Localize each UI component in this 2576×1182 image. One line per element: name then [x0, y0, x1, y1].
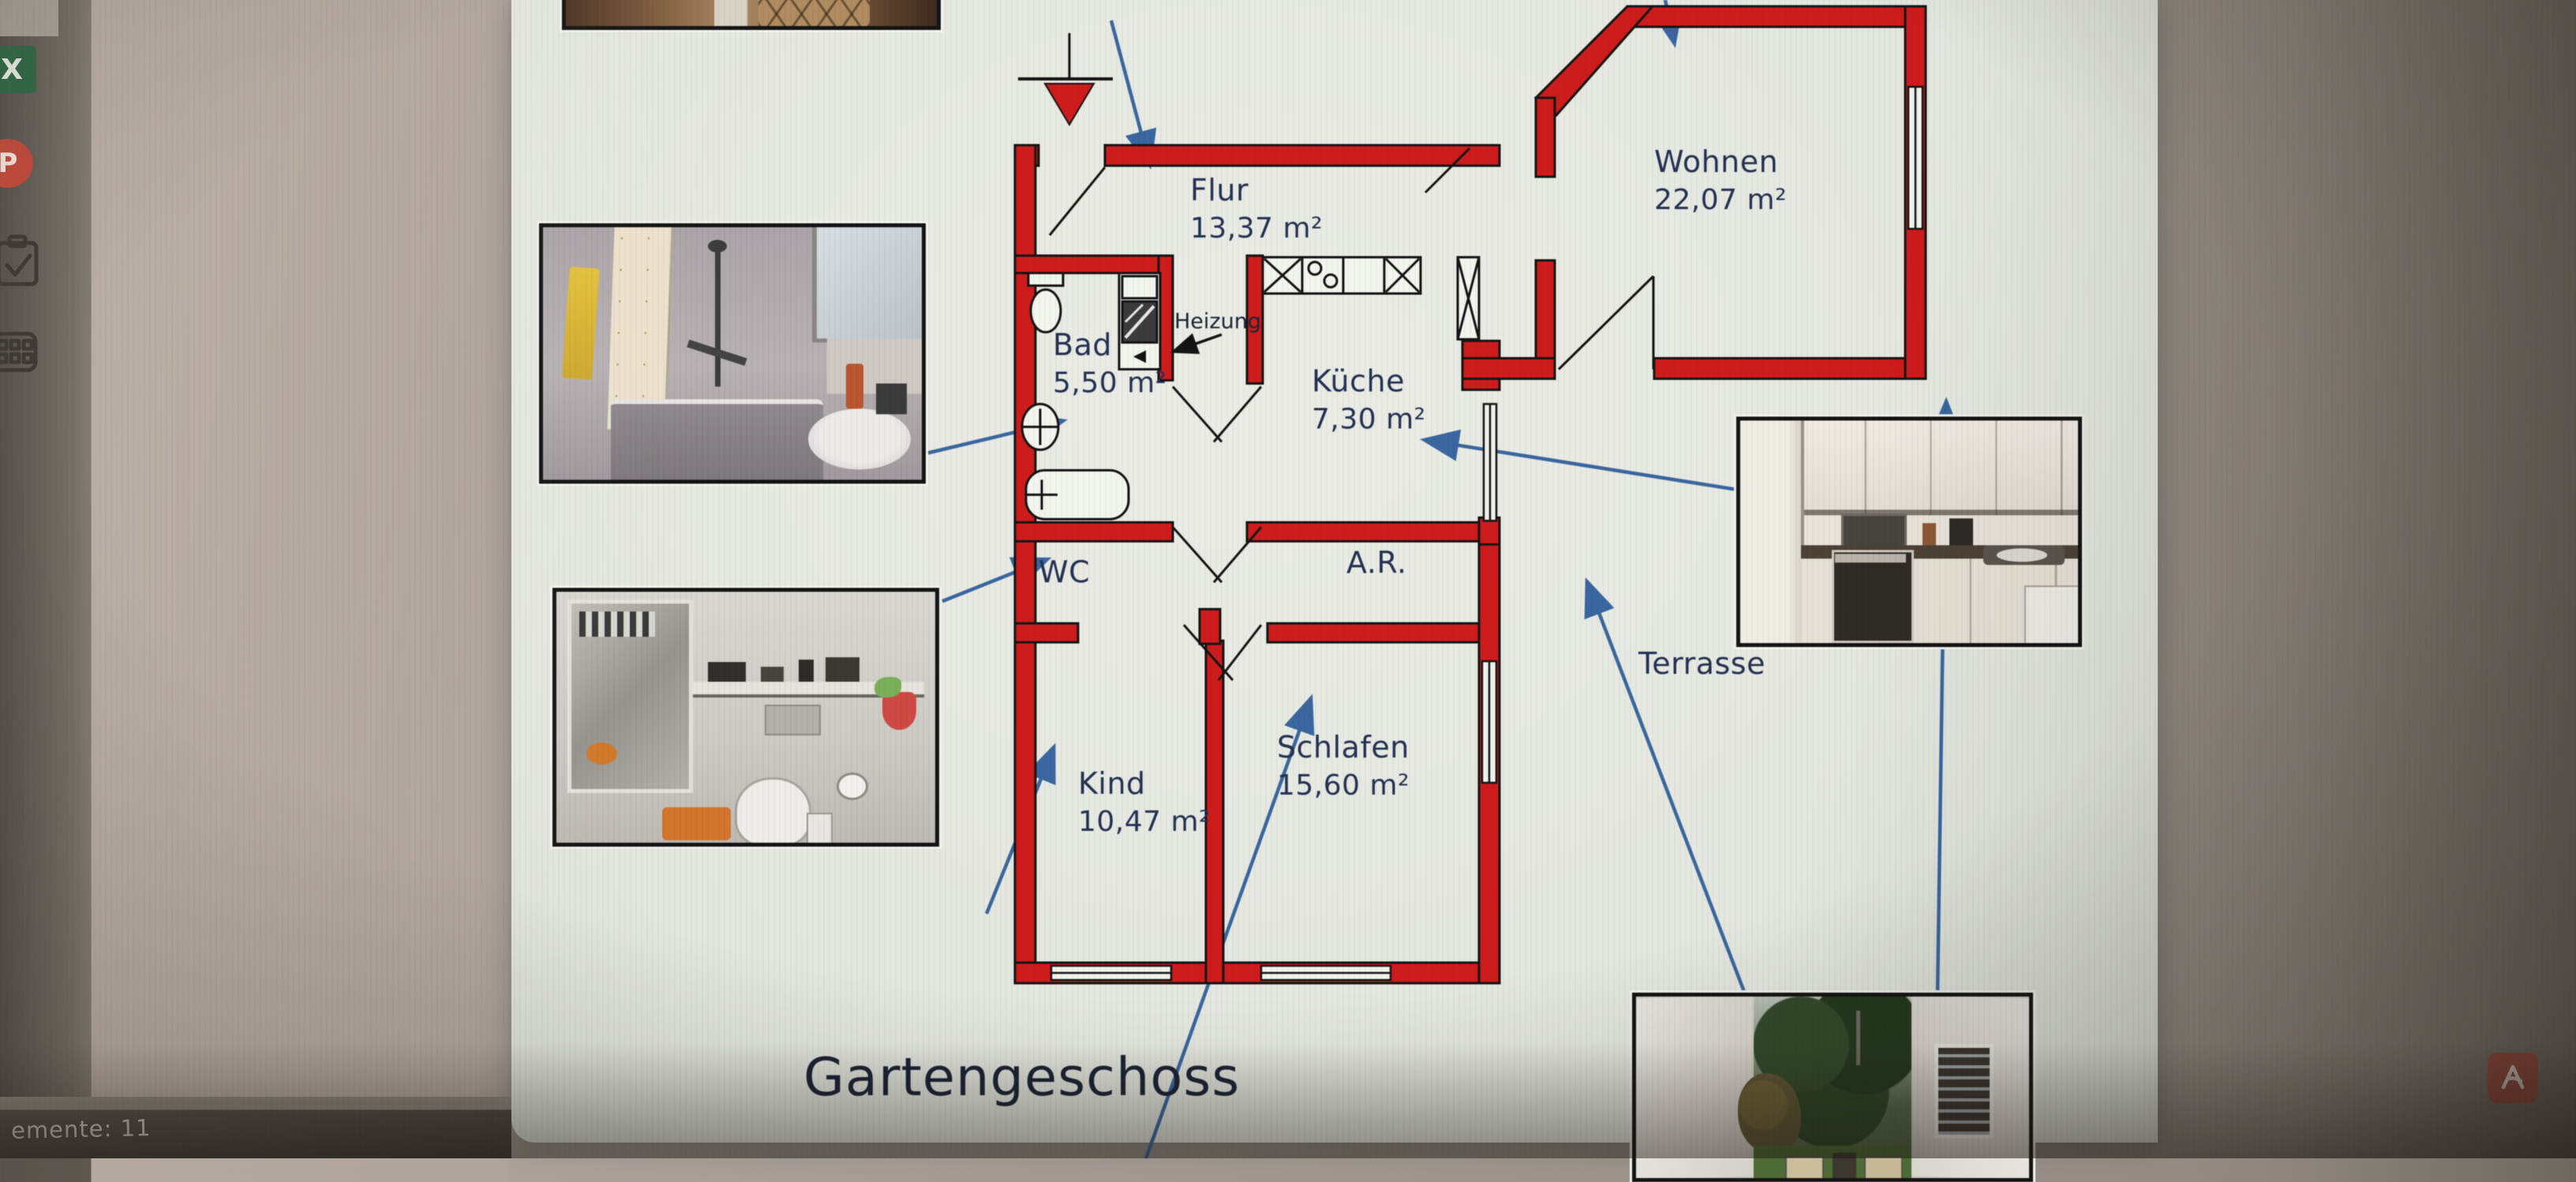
toilet	[735, 777, 811, 847]
entrance-marker	[1018, 33, 1113, 125]
wc-photo	[552, 588, 939, 847]
washbasin	[808, 409, 911, 469]
room-label-schlafen: Schlafen 15,60 m²	[1277, 728, 1410, 805]
screen-photo: { "screen": { "status_text": "emente: 11…	[0, 0, 2576, 1158]
room-label-bad: Bad 5,50 m²	[1053, 325, 1167, 402]
red-figure	[846, 364, 863, 410]
garden-photo	[1632, 993, 2033, 1182]
window	[1934, 1044, 1994, 1139]
plan-title: Gartengeschoss	[803, 1046, 1240, 1108]
hallway-photo	[562, 0, 941, 30]
upper-cabinets	[1801, 421, 2078, 515]
pdf-acrobat-icon[interactable]	[2488, 1053, 2538, 1103]
tall-cabinet	[1740, 421, 1804, 643]
room-label-wohnen: Wohnen 22,07 m²	[1654, 142, 1787, 219]
room-label-wc: WC	[1039, 552, 1090, 592]
room-label-ar: A.R.	[1346, 543, 1407, 582]
cistern	[765, 705, 821, 735]
heizung-label: Heizung	[1174, 309, 1261, 334]
room-label-kueche: Küche 7,30 m²	[1312, 361, 1426, 439]
room-label-flur: Flur 13,37 m²	[1190, 170, 1323, 248]
orange-cloth	[662, 807, 730, 840]
toilet-paper	[837, 772, 868, 800]
heizung-pointer-arrow	[1173, 335, 1222, 352]
room-name: Flur	[1190, 170, 1323, 210]
oven	[1832, 550, 1914, 644]
document-page: Flur 13,37 m² Wohnen 22,07 m² Bad 5,50 m…	[511, 0, 2158, 1143]
statusbar-text: emente: 11	[11, 1114, 152, 1144]
bathroom-window	[812, 227, 926, 342]
garden-furniture	[1785, 1156, 1824, 1181]
room-area: 13,37 m²	[1190, 210, 1323, 248]
kitchen-photo	[1736, 417, 2082, 647]
shower-pole	[715, 245, 721, 386]
room-label-terrasse: Terrasse	[1638, 644, 1765, 683]
room-label-kind: Kind 10,47 m²	[1078, 764, 1211, 841]
bathroom-photo	[539, 223, 926, 484]
soap-holder	[882, 692, 916, 730]
bathtub	[611, 399, 823, 484]
acrobat-glyph	[2497, 1062, 2529, 1094]
